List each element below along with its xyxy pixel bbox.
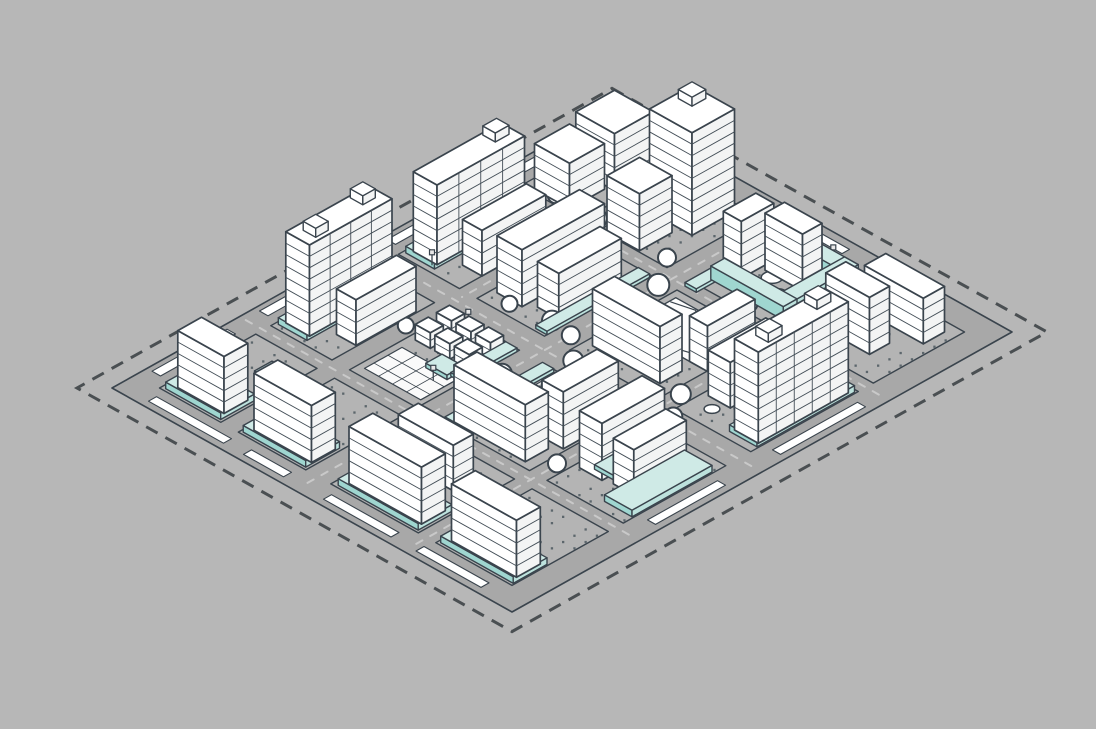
dot: [447, 272, 449, 274]
lamp-head: [431, 365, 436, 370]
dot: [573, 547, 575, 549]
dot: [281, 327, 283, 329]
dot: [688, 368, 690, 370]
dot: [601, 494, 603, 496]
isometric-city-masterplan: [0, 0, 1096, 729]
tree: [548, 454, 566, 472]
dot: [590, 488, 592, 490]
tree: [562, 326, 580, 344]
dot: [888, 358, 890, 360]
dot: [556, 481, 558, 483]
dot: [722, 414, 724, 416]
dot: [510, 456, 512, 458]
dot: [262, 360, 264, 362]
dot: [491, 297, 493, 299]
dot: [700, 414, 702, 416]
dot: [866, 371, 868, 373]
lamp-head: [466, 309, 471, 314]
dot: [562, 516, 564, 518]
dot: [528, 497, 530, 499]
dot: [525, 316, 527, 318]
dot: [900, 352, 902, 354]
dot: [458, 266, 460, 268]
dot: [331, 386, 333, 388]
dot: [251, 341, 253, 343]
dot: [713, 235, 715, 237]
dot: [273, 354, 275, 356]
dot: [315, 346, 317, 348]
dot: [415, 352, 417, 354]
dot: [536, 309, 538, 311]
dot: [326, 340, 328, 342]
dot: [585, 541, 587, 543]
dot: [578, 494, 580, 496]
tree: [658, 249, 676, 267]
dot: [877, 365, 879, 367]
dot: [713, 469, 715, 471]
dot: [621, 368, 623, 370]
dot: [342, 418, 344, 420]
dot: [426, 358, 428, 360]
dot: [342, 393, 344, 395]
dot: [623, 519, 625, 521]
dot: [922, 352, 924, 354]
dot: [376, 411, 378, 413]
dot: [337, 346, 339, 348]
dot: [911, 358, 913, 360]
illustration-stage: [0, 0, 1096, 729]
dot: [933, 346, 935, 348]
dot: [585, 528, 587, 530]
dot: [365, 405, 367, 407]
pond: [704, 405, 720, 414]
dot: [342, 443, 344, 445]
dot: [945, 339, 947, 341]
dot: [612, 513, 614, 515]
dot: [251, 367, 253, 369]
dot: [888, 371, 890, 373]
lamp-head: [430, 250, 435, 255]
dot: [498, 449, 500, 451]
dot: [353, 411, 355, 413]
tree: [502, 296, 518, 312]
dot: [551, 522, 553, 524]
dot: [596, 535, 598, 537]
dot: [900, 365, 902, 367]
dot: [855, 365, 857, 367]
dot: [551, 509, 553, 511]
dot: [562, 541, 564, 543]
dot: [680, 241, 682, 243]
dot: [587, 349, 589, 351]
dot: [303, 340, 305, 342]
dot: [285, 360, 287, 362]
dot: [567, 475, 569, 477]
dot: [758, 274, 760, 276]
dot: [551, 547, 553, 549]
dot: [573, 535, 575, 537]
dot: [711, 420, 713, 422]
dot: [590, 500, 592, 502]
tree: [671, 384, 691, 404]
tree: [647, 274, 669, 296]
dot: [476, 437, 478, 439]
